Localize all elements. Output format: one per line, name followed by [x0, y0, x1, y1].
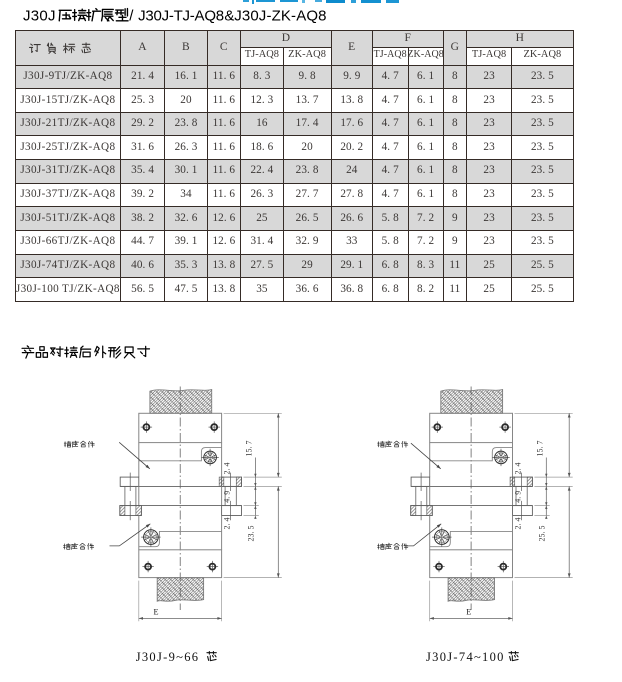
svg-text:4. 9: 4. 9	[223, 491, 232, 503]
svg-text:J30J-9~66: J30J-9~66	[136, 650, 200, 664]
svg-text:/: /	[129, 8, 134, 25]
svg-text:15. 7: 15. 7	[535, 441, 544, 457]
svg-text:J30J-ZK-AQ8: J30J-ZK-AQ8	[234, 8, 326, 25]
svg-text:4. 9: 4. 9	[514, 491, 523, 503]
svg-text:&: &	[224, 8, 234, 25]
svg-text:2. 4: 2. 4	[223, 518, 232, 530]
svg-text:E: E	[466, 608, 471, 617]
svg-text:15. 7: 15. 7	[245, 441, 254, 457]
svg-text:2. 4: 2. 4	[223, 463, 232, 475]
svg-text:2. 4: 2. 4	[514, 518, 523, 530]
svg-text:2. 4: 2. 4	[514, 463, 523, 475]
svg-text:E: E	[154, 608, 159, 617]
svg-text:J30J-TJ-AQ8: J30J-TJ-AQ8	[138, 8, 224, 25]
svg-text:25. 5: 25. 5	[537, 526, 546, 542]
svg-text:J30J: J30J	[23, 8, 56, 25]
svg-text:J30J-74~100: J30J-74~100	[426, 650, 505, 664]
svg-text:23. 5: 23. 5	[247, 526, 256, 542]
